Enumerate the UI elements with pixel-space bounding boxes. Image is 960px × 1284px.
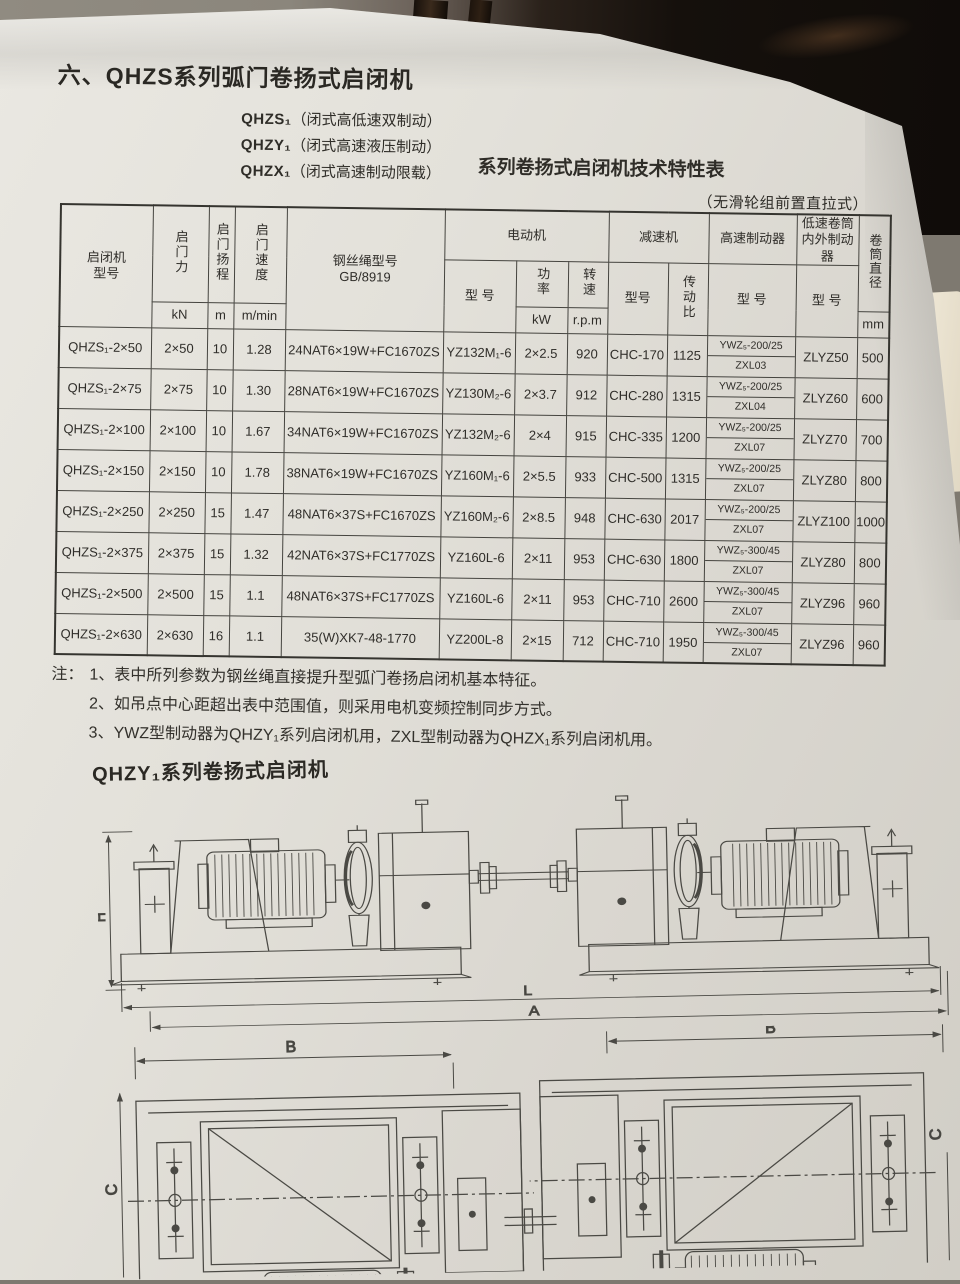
th-unit-m: m [207, 302, 233, 328]
brake-zxl-value: ZXL07 [706, 438, 793, 458]
cell-value: CHC-170 [607, 334, 668, 376]
cell-value: CHC-500 [605, 457, 666, 499]
th-speed: 启门速度 [234, 206, 287, 303]
dimension-C-right: C [928, 1128, 950, 1260]
cell-value: YZ132M₂-6 [442, 414, 515, 456]
cell-value: ZLYZ70 [794, 419, 857, 461]
cell-value: 1.28 [233, 329, 286, 371]
cell-rope: 48NAT6×37S+FC1770ZS [281, 575, 440, 618]
th-drum-diameter: 卷筒直径 [858, 215, 891, 312]
cell-value: 2×500 [147, 574, 204, 616]
brake-ywz-value: YWZ₅-200/25 [706, 459, 793, 480]
brake-zxl-value: ZXL07 [704, 602, 791, 622]
cell-model: QHZS₁-2×375 [56, 531, 149, 573]
cell-model: QHZS₁-2×500 [55, 572, 148, 614]
cell-value: 1.78 [231, 452, 284, 494]
cell-value: 2×11 [511, 579, 564, 621]
cell-value: 700 [856, 419, 889, 460]
th-force: 启门力 [152, 205, 209, 302]
cell-value: 10 [206, 410, 233, 451]
cell-value: 953 [564, 538, 605, 580]
cell-rope: 28NAT6×19W+FC1670ZS [284, 370, 443, 413]
dimension-H: H [95, 832, 135, 991]
dim-label-b: B [285, 1039, 296, 1056]
cell-value: 2×8.5 [512, 497, 565, 539]
cell-value: ZLYZ100 [792, 501, 855, 543]
dim-label-c: C [928, 1129, 945, 1141]
cell-brake-hs: YWZ₅-200/25ZXL03 [707, 335, 796, 377]
cell-value: 1125 [667, 335, 708, 377]
cell-value: 920 [567, 333, 608, 375]
cell-value: 2×375 [148, 533, 205, 575]
cell-value: CHC-630 [604, 539, 665, 581]
th-brake-ls-group: 低速卷筒 内外制动器 [796, 214, 859, 265]
cell-rope: 48NAT6×37S+FC1670ZS [282, 493, 441, 536]
cell-value: CHC-710 [603, 580, 664, 622]
spec-table-body: QHZS₁-2×502×50101.2824NAT6×19W+FC1670ZSY… [55, 326, 890, 666]
cell-value: 953 [563, 579, 604, 621]
cell-brake-hs: YWZ₅-300/45ZXL07 [703, 622, 792, 664]
subtitle-suffix: 系列卷扬式启闭机技术特性表 [477, 152, 724, 182]
cell-value: 600 [856, 378, 889, 419]
cell-value: YZ130M₂-6 [442, 373, 515, 415]
dim-label-b: B [765, 1022, 776, 1037]
hoist-unit-left [108, 799, 481, 992]
hoist-unit-plan-right [528, 1073, 939, 1280]
cell-brake-hs: YWZ₅-200/25ZXL04 [706, 376, 795, 418]
brake-ywz-value: YWZ₅-300/45 [704, 582, 791, 603]
cell-value: CHC-280 [606, 375, 667, 417]
cell-value: 1200 [666, 417, 707, 459]
upper-content: 六、QHZS系列弧门卷扬式启闭机 QHZS₁（闭式高低速双制动） QHZY₁（闭… [0, 0, 960, 782]
cell-value: 2×75 [150, 369, 207, 411]
cell-value: YZ200L-8 [439, 619, 512, 661]
cell-value: 1.1 [229, 575, 282, 617]
cell-value: 15 [204, 492, 231, 533]
cell-value: YZ160M₂-6 [440, 496, 513, 538]
cell-value: 915 [566, 415, 607, 457]
th-motor-rpm: 转速 [568, 261, 609, 308]
cell-model: QHZS₁-2×250 [56, 490, 149, 532]
cell-model: QHZS₁-2×630 [55, 613, 148, 655]
cell-value: 2×100 [150, 410, 207, 452]
th-reducer-ratio: 传动比 [667, 263, 708, 336]
dim-label-a: A [529, 1004, 540, 1019]
dim-label-c: C [104, 1184, 121, 1196]
th-unit-mmin: m/min [233, 303, 285, 330]
cell-value: ZLYZ60 [794, 378, 857, 420]
series-desc: （闭式高速制动限载） [291, 163, 441, 182]
plan-view-drawing: B B C C [101, 1022, 958, 1280]
brake-ywz-value: YWZ₅-300/45 [703, 623, 790, 644]
th-unit-kn: kN [151, 302, 207, 329]
cell-value: 1.1 [229, 616, 282, 658]
cell-value: 1.32 [230, 534, 283, 576]
series-model: QHZS₁ [241, 111, 292, 129]
document-page: 六、QHZS系列弧门卷扬式启闭机 QHZS₁（闭式高低速双制动） QHZY₁（闭… [0, 0, 960, 1280]
cell-brake-hs: YWZ₅-300/45ZXL07 [703, 581, 792, 623]
page-title: 六、QHZS系列弧门卷扬式启闭机 [58, 56, 414, 95]
cell-value: 960 [853, 624, 886, 665]
cell-value: ZLYZ80 [793, 460, 856, 502]
drawing-title: QHZY₁系列卷扬式启闭机 [92, 753, 329, 787]
cell-value: 2×4 [514, 415, 567, 457]
cell-value: 2×5.5 [513, 456, 566, 498]
cell-rope: 24NAT6×19W+FC1670ZS [285, 329, 444, 372]
th-brake-hs-group: 高速制动器 [708, 213, 797, 264]
cell-value: 15 [204, 533, 231, 574]
cell-model: QHZS₁-2×50 [59, 326, 152, 368]
cell-value: ZLYZ50 [795, 337, 858, 379]
cell-value: YZ132M₁-6 [443, 332, 516, 374]
cell-value: YZ160M₁-6 [441, 455, 514, 497]
th-unit-kw: kW [515, 307, 567, 334]
cell-value: 712 [563, 620, 604, 662]
cell-rope: 38NAT6×19W+FC1670ZS [283, 452, 442, 495]
th-reducer-model: 型号 [607, 262, 668, 335]
cell-value: 2×3.7 [514, 374, 567, 416]
dim-label-l: L [523, 984, 532, 999]
cell-brake-hs: YWZ₅-200/25ZXL07 [704, 499, 793, 541]
cell-value: 2×2.5 [515, 333, 568, 375]
engineering-drawings: QHZY₁系列卷扬式启闭机 [0, 734, 960, 1284]
cell-value: 2×250 [148, 492, 205, 534]
cell-value: 948 [564, 497, 605, 539]
cell-value: 16 [203, 615, 230, 656]
cell-value: 1.67 [232, 411, 285, 453]
cell-value: 2×630 [147, 615, 204, 657]
cell-value: 1315 [666, 376, 707, 418]
cell-value: ZLYZ80 [792, 542, 855, 584]
cell-value: ZLYZ96 [791, 624, 854, 666]
th-reducer-group: 减速机 [608, 212, 709, 264]
cell-value: 960 [853, 583, 886, 624]
th-motor-power: 功率 [516, 261, 569, 308]
connecting-shaft [478, 861, 569, 893]
spec-table: 启闭机 型号 启门力 启门扬程 启门速度 钢丝绳型号 GB/8919 电动机 减… [54, 203, 892, 667]
cell-brake-hs: YWZ₅-200/25ZXL07 [705, 458, 794, 500]
th-unit-rpm: r.p.m [567, 307, 607, 334]
th-unit-mm: mm [857, 311, 889, 337]
th-brake-ls-model: 型 号 [795, 265, 858, 338]
brake-ywz-value: YWZ₅-200/25 [705, 500, 792, 521]
cell-value: 933 [565, 456, 606, 498]
cell-value: 2×11 [512, 538, 565, 580]
series-desc: （闭式高速液压制动） [291, 137, 441, 156]
th-hoist-model: 启闭机 型号 [59, 204, 153, 328]
dim-label-h: H [95, 912, 109, 922]
cell-value: 1800 [664, 540, 705, 582]
cell-value: 500 [857, 337, 890, 378]
header-group-row: 启闭机 型号 启门力 启门扬程 启门速度 钢丝绳型号 GB/8919 电动机 减… [60, 204, 891, 266]
brake-ywz-value: YWZ₅-200/25 [706, 418, 793, 439]
cell-value: 2600 [663, 581, 704, 623]
cell-value: YZ160L-6 [440, 537, 513, 579]
cell-model: QHZS₁-2×150 [57, 449, 150, 491]
cell-model: QHZS₁-2×75 [58, 367, 151, 409]
cell-value: CHC-630 [604, 498, 665, 540]
series-desc: （闭式高低速双制动） [291, 111, 441, 130]
cell-value: 1.30 [232, 370, 285, 412]
th-motor-model: 型 号 [443, 260, 516, 333]
dimension-B-left: B [135, 1036, 454, 1096]
hoist-unit-plan-left [126, 1093, 537, 1280]
cell-rope: 34NAT6×19W+FC1670ZS [284, 411, 443, 454]
cell-value: 1000 [854, 501, 887, 542]
cell-value: 10 [207, 328, 234, 369]
cell-value: 2×50 [151, 328, 208, 370]
cell-value: CHC-710 [603, 621, 664, 663]
cell-value: YZ160L-6 [439, 578, 512, 620]
cell-brake-hs: YWZ₅-200/25ZXL07 [706, 417, 795, 459]
dimension-B-right: B [606, 1022, 943, 1059]
cell-value: 15 [203, 574, 230, 615]
brake-ywz-value: YWZ₅-200/25 [707, 336, 794, 357]
cell-brake-hs: YWZ₅-300/45ZXL07 [704, 540, 793, 582]
brake-zxl-value: ZXL07 [703, 643, 790, 663]
cell-value: 800 [854, 542, 887, 583]
cell-value: 1.47 [230, 493, 283, 535]
th-motor-group: 电动机 [444, 209, 609, 262]
brake-zxl-value: ZXL03 [707, 356, 794, 376]
cell-value: CHC-335 [606, 416, 667, 458]
cell-rope: 35(W)XK7-48-1770 [281, 616, 440, 659]
th-rope: 钢丝绳型号 GB/8919 [285, 207, 445, 331]
cell-rope: 42NAT6×37S+FC1770ZS [282, 534, 441, 577]
brake-zxl-value: ZXL07 [704, 561, 791, 581]
cell-value: 1315 [665, 458, 706, 500]
cell-value: 2×15 [511, 620, 564, 662]
note-label: 注： [51, 660, 89, 690]
subtitle-block: QHZS₁（闭式高低速双制动） QHZY₁（闭式高速液压制动） QHZX₁（闭式… [240, 107, 881, 194]
plan-connecting-shaft [504, 1208, 556, 1233]
cell-value: 2×150 [149, 451, 206, 493]
cell-value: ZLYZ96 [791, 583, 854, 625]
cell-value: 2017 [664, 499, 705, 541]
elevation-view-drawing: H L A [95, 772, 952, 1038]
cell-value: 10 [205, 451, 232, 492]
th-stroke: 启门扬程 [208, 206, 235, 303]
cell-value: 10 [206, 369, 233, 410]
brake-zxl-value: ZXL04 [707, 397, 794, 417]
brake-ywz-value: YWZ₅-200/25 [707, 377, 794, 398]
hoist-unit-right [567, 789, 940, 982]
cell-value: 800 [855, 460, 888, 501]
series-model: QHZY₁ [241, 137, 292, 155]
brake-zxl-value: ZXL07 [705, 520, 792, 540]
cell-model: QHZS₁-2×100 [58, 408, 151, 450]
cell-value: 912 [566, 374, 607, 416]
brake-ywz-value: YWZ₅-300/45 [705, 541, 792, 562]
cell-value: 1950 [663, 622, 704, 664]
dimension-A: A [150, 971, 949, 1032]
series-model: QHZX₁ [240, 163, 291, 181]
dimension-C-left: C [102, 1094, 124, 1278]
brake-zxl-value: ZXL07 [705, 479, 792, 499]
th-brake-hs-model: 型 号 [707, 263, 796, 336]
